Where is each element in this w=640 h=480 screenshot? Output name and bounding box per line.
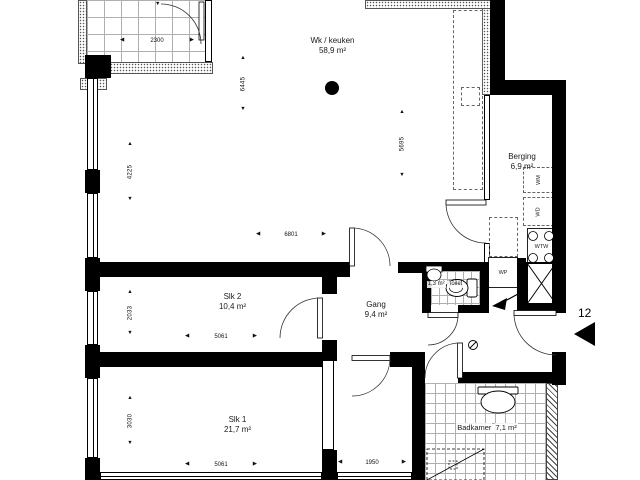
dim-arrow-left-icon: ◀ xyxy=(338,460,342,466)
drawing-layer xyxy=(0,0,640,480)
slk2-door-leaf xyxy=(318,298,323,338)
column-dot xyxy=(325,81,339,95)
slk1-door-arc xyxy=(352,358,390,396)
dimension-living-right: ▲ 5695 ▼ xyxy=(395,110,409,178)
berging-door-leaf xyxy=(446,200,486,205)
dimension-slk2-depth: ▲ 2033 ▼ xyxy=(123,290,137,336)
dimension-balcony-width: ◀ 2300 ▶ xyxy=(120,38,194,44)
berging-door-arc xyxy=(446,203,486,243)
dimension-value: 5061 xyxy=(214,462,227,468)
dimension-living-depth: ▲ 6445 ▼ xyxy=(236,56,250,112)
dim-arrow-up-icon: ▲ xyxy=(399,110,404,116)
room-name: Berging xyxy=(493,152,551,162)
room-name: Slk 2 xyxy=(200,292,265,302)
wtw-duct-icon xyxy=(529,254,538,263)
toilet-door-arc xyxy=(428,315,458,345)
dim-arrow-right-icon: ▶ xyxy=(190,38,194,44)
entry-direction-arrow-icon xyxy=(492,298,507,310)
shower-diagonal xyxy=(427,449,484,480)
dim-arrow-down-icon: ▼ xyxy=(127,441,132,447)
room-area: 58,9 m² xyxy=(290,46,375,56)
dimension-value: 6801 xyxy=(284,232,297,238)
room-area: 9,4 m² xyxy=(348,310,404,320)
dimension-slk2-width: ◀ 5061 ▶ xyxy=(185,334,257,340)
room-area: 6,9 m² xyxy=(493,162,551,172)
living-door-leaf xyxy=(350,228,355,266)
dim-arrow-down-icon: ▼ xyxy=(399,173,404,179)
slk1-door-leaf xyxy=(352,356,390,361)
bathroom-door-leaf xyxy=(458,343,463,378)
room-name: Slk 1 xyxy=(205,415,270,425)
room-label-living: Wk / keuken 58,9 m² xyxy=(290,36,375,57)
room-label-toilet: 1,3 m² Toilet xyxy=(424,281,466,288)
wc-tank xyxy=(467,279,477,297)
dimension-living-width: ◀ 6801 ▶ xyxy=(256,232,326,238)
dimension-value: 4225 xyxy=(127,165,133,180)
dimension-value: 5061 xyxy=(214,334,227,340)
room-label-slk2: Slk 2 10,4 m² xyxy=(200,292,265,313)
dim-arrow-left-icon: ◀ xyxy=(120,38,124,44)
entry-arrow-tail xyxy=(505,294,518,301)
room-area: 21,7 m² xyxy=(205,425,270,435)
slk2-door-arc xyxy=(280,298,320,338)
dim-arrow-left-icon: ◀ xyxy=(185,462,189,468)
bathroom-door-arc xyxy=(425,343,460,378)
entrance-door-leaf xyxy=(514,311,556,316)
entrance-door-arc xyxy=(514,313,556,355)
dimension-value: 6445 xyxy=(240,77,246,92)
dim-arrow-up-icon: ▲ xyxy=(240,56,245,62)
room-label-berging: Berging 6,9 m² xyxy=(493,152,551,173)
wtw-duct-icon xyxy=(545,232,554,241)
dimension-value: 5695 xyxy=(399,137,405,152)
dim-arrow-right-icon: ▶ xyxy=(253,462,257,468)
dim-arrow-right-icon: ▶ xyxy=(253,334,257,340)
floor-plan: WM WD WTW WP xyxy=(0,0,640,480)
dimension-slk1-width: ◀ 5061 ▶ xyxy=(185,462,257,468)
dim-arrow-up-icon: ▲ xyxy=(127,290,132,296)
dim-arrow-up-icon: ▲ xyxy=(127,142,132,148)
room-area: 7,1 m² xyxy=(495,423,518,433)
room-label-slk1: Slk 1 21,7 m² xyxy=(205,415,270,436)
dim-arrow-down-icon: ▼ xyxy=(127,197,132,203)
toilet-sink-basin xyxy=(427,269,441,281)
dimension-value: 2300 xyxy=(150,38,163,44)
dimension-value: 2033 xyxy=(127,306,133,321)
dim-arrow-left-icon: ◀ xyxy=(185,334,189,340)
wtw-duct-icon xyxy=(529,232,538,241)
dim-arrow-left-icon: ◀ xyxy=(256,232,260,238)
unit-number: 12 xyxy=(578,306,591,320)
room-area: 10,4 m² xyxy=(200,302,265,312)
room-label-gang: Gang 9,4 m² xyxy=(348,300,404,321)
dim-arrow-up-icon: ▲ xyxy=(127,396,132,402)
dim-arrow-down-icon: ▼ xyxy=(240,107,245,113)
room-name: Gang xyxy=(348,300,404,310)
room-name: Wk / keuken xyxy=(290,36,375,46)
dim-arrow-right-icon: ▶ xyxy=(322,232,326,238)
dimension-entry-width: ◀ 1950 ▶ xyxy=(338,460,406,466)
dim-arrow-down-icon: ▼ xyxy=(155,2,160,8)
room-area: 1,3 m² xyxy=(427,281,446,288)
dimension-value: 1950 xyxy=(365,460,378,466)
dim-arrow-down-icon: ▼ xyxy=(127,331,132,337)
room-name: Badkamer xyxy=(456,423,492,433)
room-label-badkamer: Badkamer 7,1 m² xyxy=(453,423,521,433)
bathroom-sink-basin xyxy=(481,391,515,413)
wtw-duct-icon xyxy=(545,254,554,263)
dimension-living-left: ▲ 4225 ▼ xyxy=(123,142,137,202)
dimension-slk1-depth: ▲ 3030 ▼ xyxy=(123,396,137,446)
room-name: Toilet xyxy=(447,281,463,288)
dim-arrow-right-icon: ▶ xyxy=(402,460,406,466)
toilet-door-leaf xyxy=(428,313,458,318)
dimension-value: 3030 xyxy=(127,414,133,429)
unit-entrance-triangle-icon xyxy=(574,322,595,346)
living-door-arc xyxy=(352,228,390,266)
